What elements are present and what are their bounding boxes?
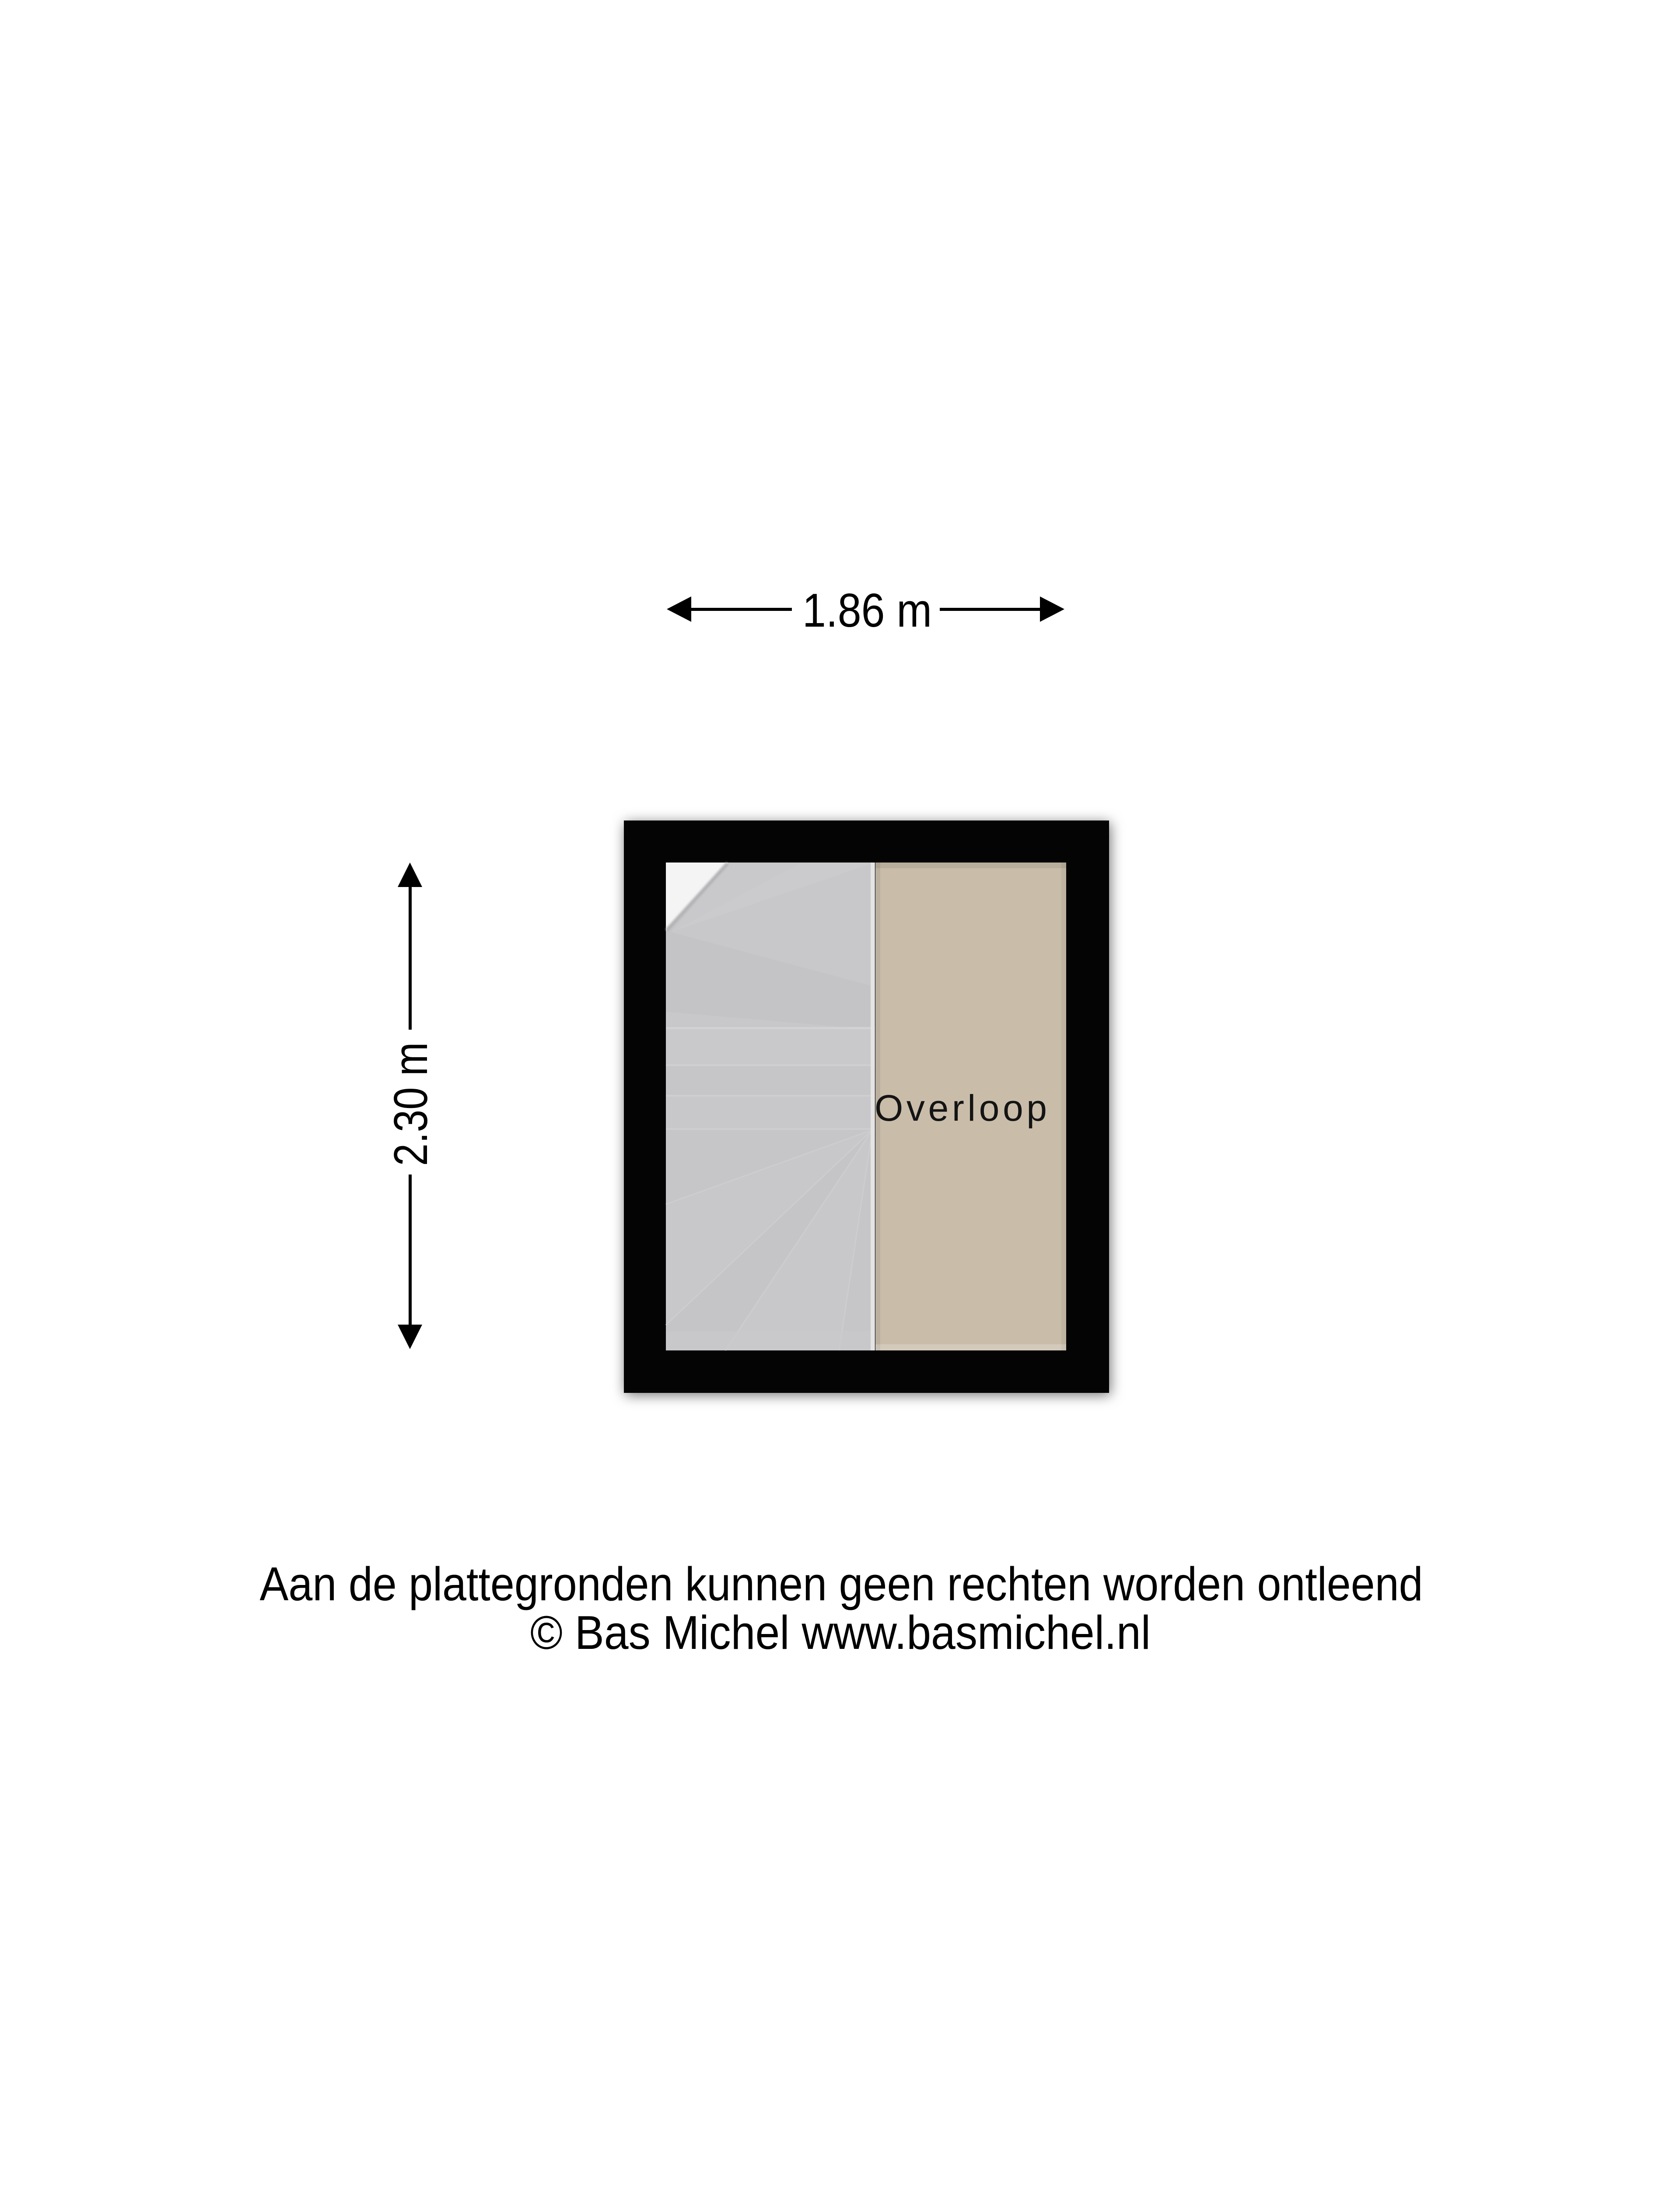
svg-text:1.86 m: 1.86 m [802, 584, 932, 637]
svg-text:© Bas Michel www.basmichel.nl: © Bas Michel www.basmichel.nl [530, 1606, 1151, 1659]
svg-text:Aan de plattegronden kunnen ge: Aan de plattegronden kunnen geen rechten… [260, 1557, 1423, 1611]
svg-text:Overloop: Overloop [875, 1087, 1047, 1129]
svg-text:2.30 m: 2.30 m [384, 1042, 437, 1166]
